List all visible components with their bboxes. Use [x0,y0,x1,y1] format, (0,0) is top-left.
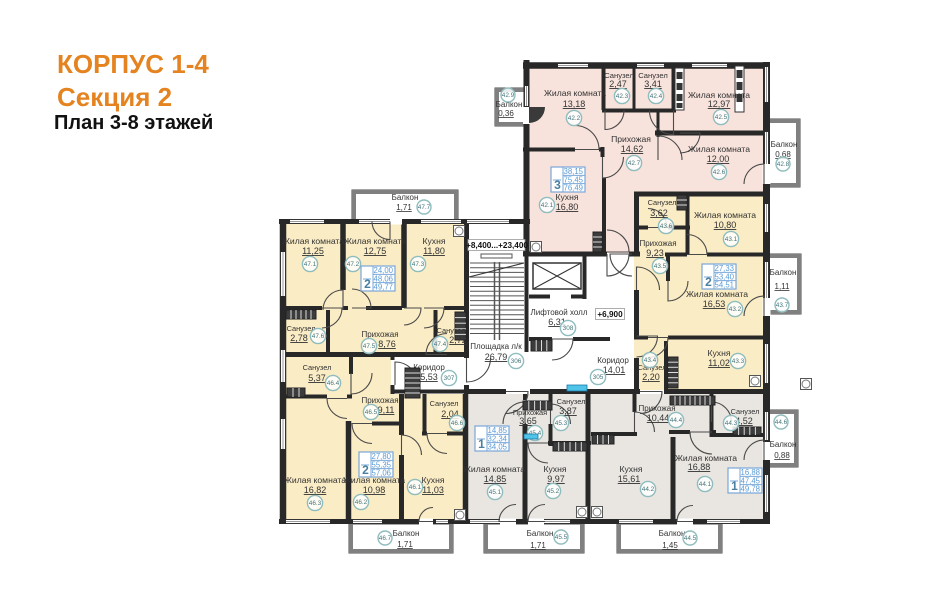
svg-text:46.5: 46.5 [365,409,378,416]
svg-text:Жилая комната: Жилая комната [463,464,525,474]
svg-text:42.7: 42.7 [628,160,641,167]
svg-text:49,78: 49,78 [740,485,760,494]
svg-text:2: 2 [364,277,371,291]
svg-text:1,71: 1,71 [530,541,546,550]
svg-text:10,80: 10,80 [714,220,737,230]
svg-text:2: 2 [705,275,712,289]
svg-text:47.4: 47.4 [434,341,447,348]
svg-text:Прихожая: Прихожая [361,330,398,339]
svg-text:46.4: 46.4 [327,380,340,387]
svg-text:305: 305 [593,374,604,381]
svg-text:Балкон: Балкон [527,529,554,538]
svg-text:10,44: 10,44 [647,413,670,423]
svg-text:1,11: 1,11 [775,282,791,291]
svg-text:46.3: 46.3 [309,500,322,507]
svg-text:Прихожая: Прихожая [638,404,675,413]
svg-text:Жилая комната: Жилая комната [688,144,750,154]
svg-text:11,02: 11,02 [708,358,730,368]
svg-text:47.6: 47.6 [312,333,325,340]
svg-text:44.3: 44.3 [725,420,738,427]
svg-text:Коридор: Коридор [413,363,445,372]
svg-text:44.5: 44.5 [684,535,697,542]
svg-text:46.6: 46.6 [451,420,464,427]
svg-text:16,80: 16,80 [556,202,579,212]
svg-text:Кухня: Кухня [620,464,643,474]
svg-text:3: 3 [554,178,561,192]
svg-text:14,01: 14,01 [603,365,626,375]
svg-text:Балкон: Балкон [771,140,798,149]
svg-text:43.6: 43.6 [660,223,673,230]
svg-text:34,05: 34,05 [487,443,507,452]
svg-text:42.2: 42.2 [568,115,581,122]
svg-text:Кухня: Кухня [422,475,445,485]
svg-text:76,49: 76,49 [563,184,583,193]
svg-text:Санузел: Санузел [557,397,586,406]
svg-text:Балкон: Балкон [392,193,419,202]
svg-text:42.3: 42.3 [616,93,629,100]
svg-text:Санузел: Санузел [430,399,459,408]
svg-text:Балкон: Балкон [770,268,797,277]
svg-text:Жилая комната: Жилая комната [694,210,756,220]
svg-text:Санузел: Санузел [731,407,760,416]
svg-text:47.2: 47.2 [347,261,360,268]
svg-text:Площадка л/к: Площадка л/к [470,342,522,351]
svg-text:1,71: 1,71 [397,540,413,549]
svg-text:2,78: 2,78 [290,333,308,343]
svg-text:1: 1 [478,437,485,451]
svg-text:43.4: 43.4 [644,357,657,364]
svg-text:0,36: 0,36 [498,109,514,118]
svg-text:12,97: 12,97 [708,99,731,109]
svg-text:Коридор: Коридор [597,356,629,365]
svg-text:+8,400...+23,400: +8,400...+23,400 [466,241,528,250]
svg-text:43.7: 43.7 [776,302,789,309]
svg-text:44.1: 44.1 [699,481,712,488]
svg-text:1,45: 1,45 [662,541,678,550]
svg-text:Прихожая: Прихожая [611,134,651,144]
svg-text:14,85: 14,85 [484,474,507,484]
svg-text:42.6: 42.6 [713,169,726,176]
svg-text:2,20: 2,20 [642,372,660,382]
svg-text:План 3-8 этажей: План 3-8 этажей [54,112,213,134]
svg-text:1,71: 1,71 [396,203,412,212]
svg-text:12,00: 12,00 [707,154,730,164]
svg-text:Лифтовой холл: Лифтовой холл [531,308,588,317]
svg-text:2,47: 2,47 [609,79,627,89]
svg-text:Кухня: Кухня [708,348,731,358]
svg-text:Санузел: Санузел [437,326,466,335]
svg-text:0,88: 0,88 [774,451,790,460]
svg-text:44.4: 44.4 [670,417,683,424]
svg-text:Балкон: Балкон [659,529,686,538]
svg-text:Санузел: Санузел [303,363,332,372]
svg-text:5,37: 5,37 [308,373,326,383]
svg-text:11,03: 11,03 [422,485,444,495]
svg-text:45.5: 45.5 [555,534,568,541]
svg-text:Жилая комната: Жилая комната [686,289,748,299]
svg-text:3,65: 3,65 [519,416,537,426]
svg-text:8,76: 8,76 [378,339,396,349]
svg-text:45.1: 45.1 [489,489,502,496]
svg-text:43.1: 43.1 [725,236,738,243]
svg-text:Жилая комната: Жилая комната [344,236,406,246]
svg-text:47.1: 47.1 [304,261,317,268]
svg-text:5,53: 5,53 [420,372,438,382]
svg-text:43.5: 43.5 [654,263,667,270]
svg-text:43.3: 43.3 [732,358,745,365]
svg-text:9,97: 9,97 [547,474,565,484]
svg-text:Кухня: Кухня [556,192,579,202]
svg-text:12,75: 12,75 [364,246,387,256]
svg-text:43.2: 43.2 [729,306,742,313]
svg-text:42.9: 42.9 [502,92,515,99]
svg-text:45.3: 45.3 [555,420,568,427]
svg-text:Жилая комната: Жилая комната [282,236,344,246]
svg-text:11,25: 11,25 [302,246,324,256]
svg-text:44.2: 44.2 [642,486,655,493]
svg-text:42.8: 42.8 [777,161,790,168]
svg-text:16,82: 16,82 [304,485,327,495]
svg-text:45.2: 45.2 [547,488,560,495]
svg-text:Жилая комната: Жилая комната [544,88,606,98]
svg-text:47.7: 47.7 [418,204,431,211]
svg-text:49,77: 49,77 [373,283,393,292]
svg-text:Кухня: Кухня [544,464,567,474]
svg-text:Прихожая: Прихожая [639,239,676,248]
svg-text:307: 307 [444,375,455,382]
svg-text:Санузел: Санузел [648,198,677,207]
svg-text:3,87: 3,87 [559,406,577,416]
svg-text:2,72: 2,72 [449,335,467,345]
svg-text:10,98: 10,98 [363,485,386,495]
svg-text:Секция 2: Секция 2 [57,82,172,112]
svg-text:15,61: 15,61 [618,474,641,484]
svg-text:Жилая комната: Жилая комната [284,475,346,485]
svg-text:2: 2 [362,463,369,477]
svg-text:Балкон: Балкон [393,529,420,538]
svg-text:14,62: 14,62 [621,144,644,154]
svg-text:42.4: 42.4 [650,93,663,100]
svg-text:46.2: 46.2 [355,499,368,506]
svg-text:57,06: 57,06 [371,469,391,478]
svg-text:3,41: 3,41 [644,79,662,89]
svg-text:42.5: 42.5 [715,114,728,121]
svg-text:16,88: 16,88 [688,462,711,472]
svg-text:13,18: 13,18 [563,99,586,109]
svg-text:47.3: 47.3 [412,261,425,268]
svg-text:46.1: 46.1 [409,484,422,491]
svg-text:9,11: 9,11 [378,405,395,415]
svg-text:306: 306 [511,358,522,365]
svg-text:Балкон: Балкон [770,440,797,449]
svg-text:46.7: 46.7 [379,535,392,542]
svg-text:26,79: 26,79 [485,352,508,362]
svg-text:308: 308 [563,325,574,332]
svg-text:1: 1 [731,479,738,493]
svg-text:42.1: 42.1 [541,202,554,209]
svg-text:Кухня: Кухня [423,236,446,246]
svg-text:Прихожая: Прихожая [361,396,398,405]
svg-text:16,53: 16,53 [703,299,726,309]
svg-text:КОРПУС 1-4: КОРПУС 1-4 [57,49,209,79]
svg-text:3,62: 3,62 [650,208,668,218]
svg-text:54,51: 54,51 [714,281,734,290]
svg-text:9,23: 9,23 [646,248,664,258]
svg-text:+6,900: +6,900 [597,310,623,319]
svg-text:47.5: 47.5 [363,343,376,350]
svg-text:11,80: 11,80 [423,246,445,256]
svg-text:44.6: 44.6 [775,419,788,426]
